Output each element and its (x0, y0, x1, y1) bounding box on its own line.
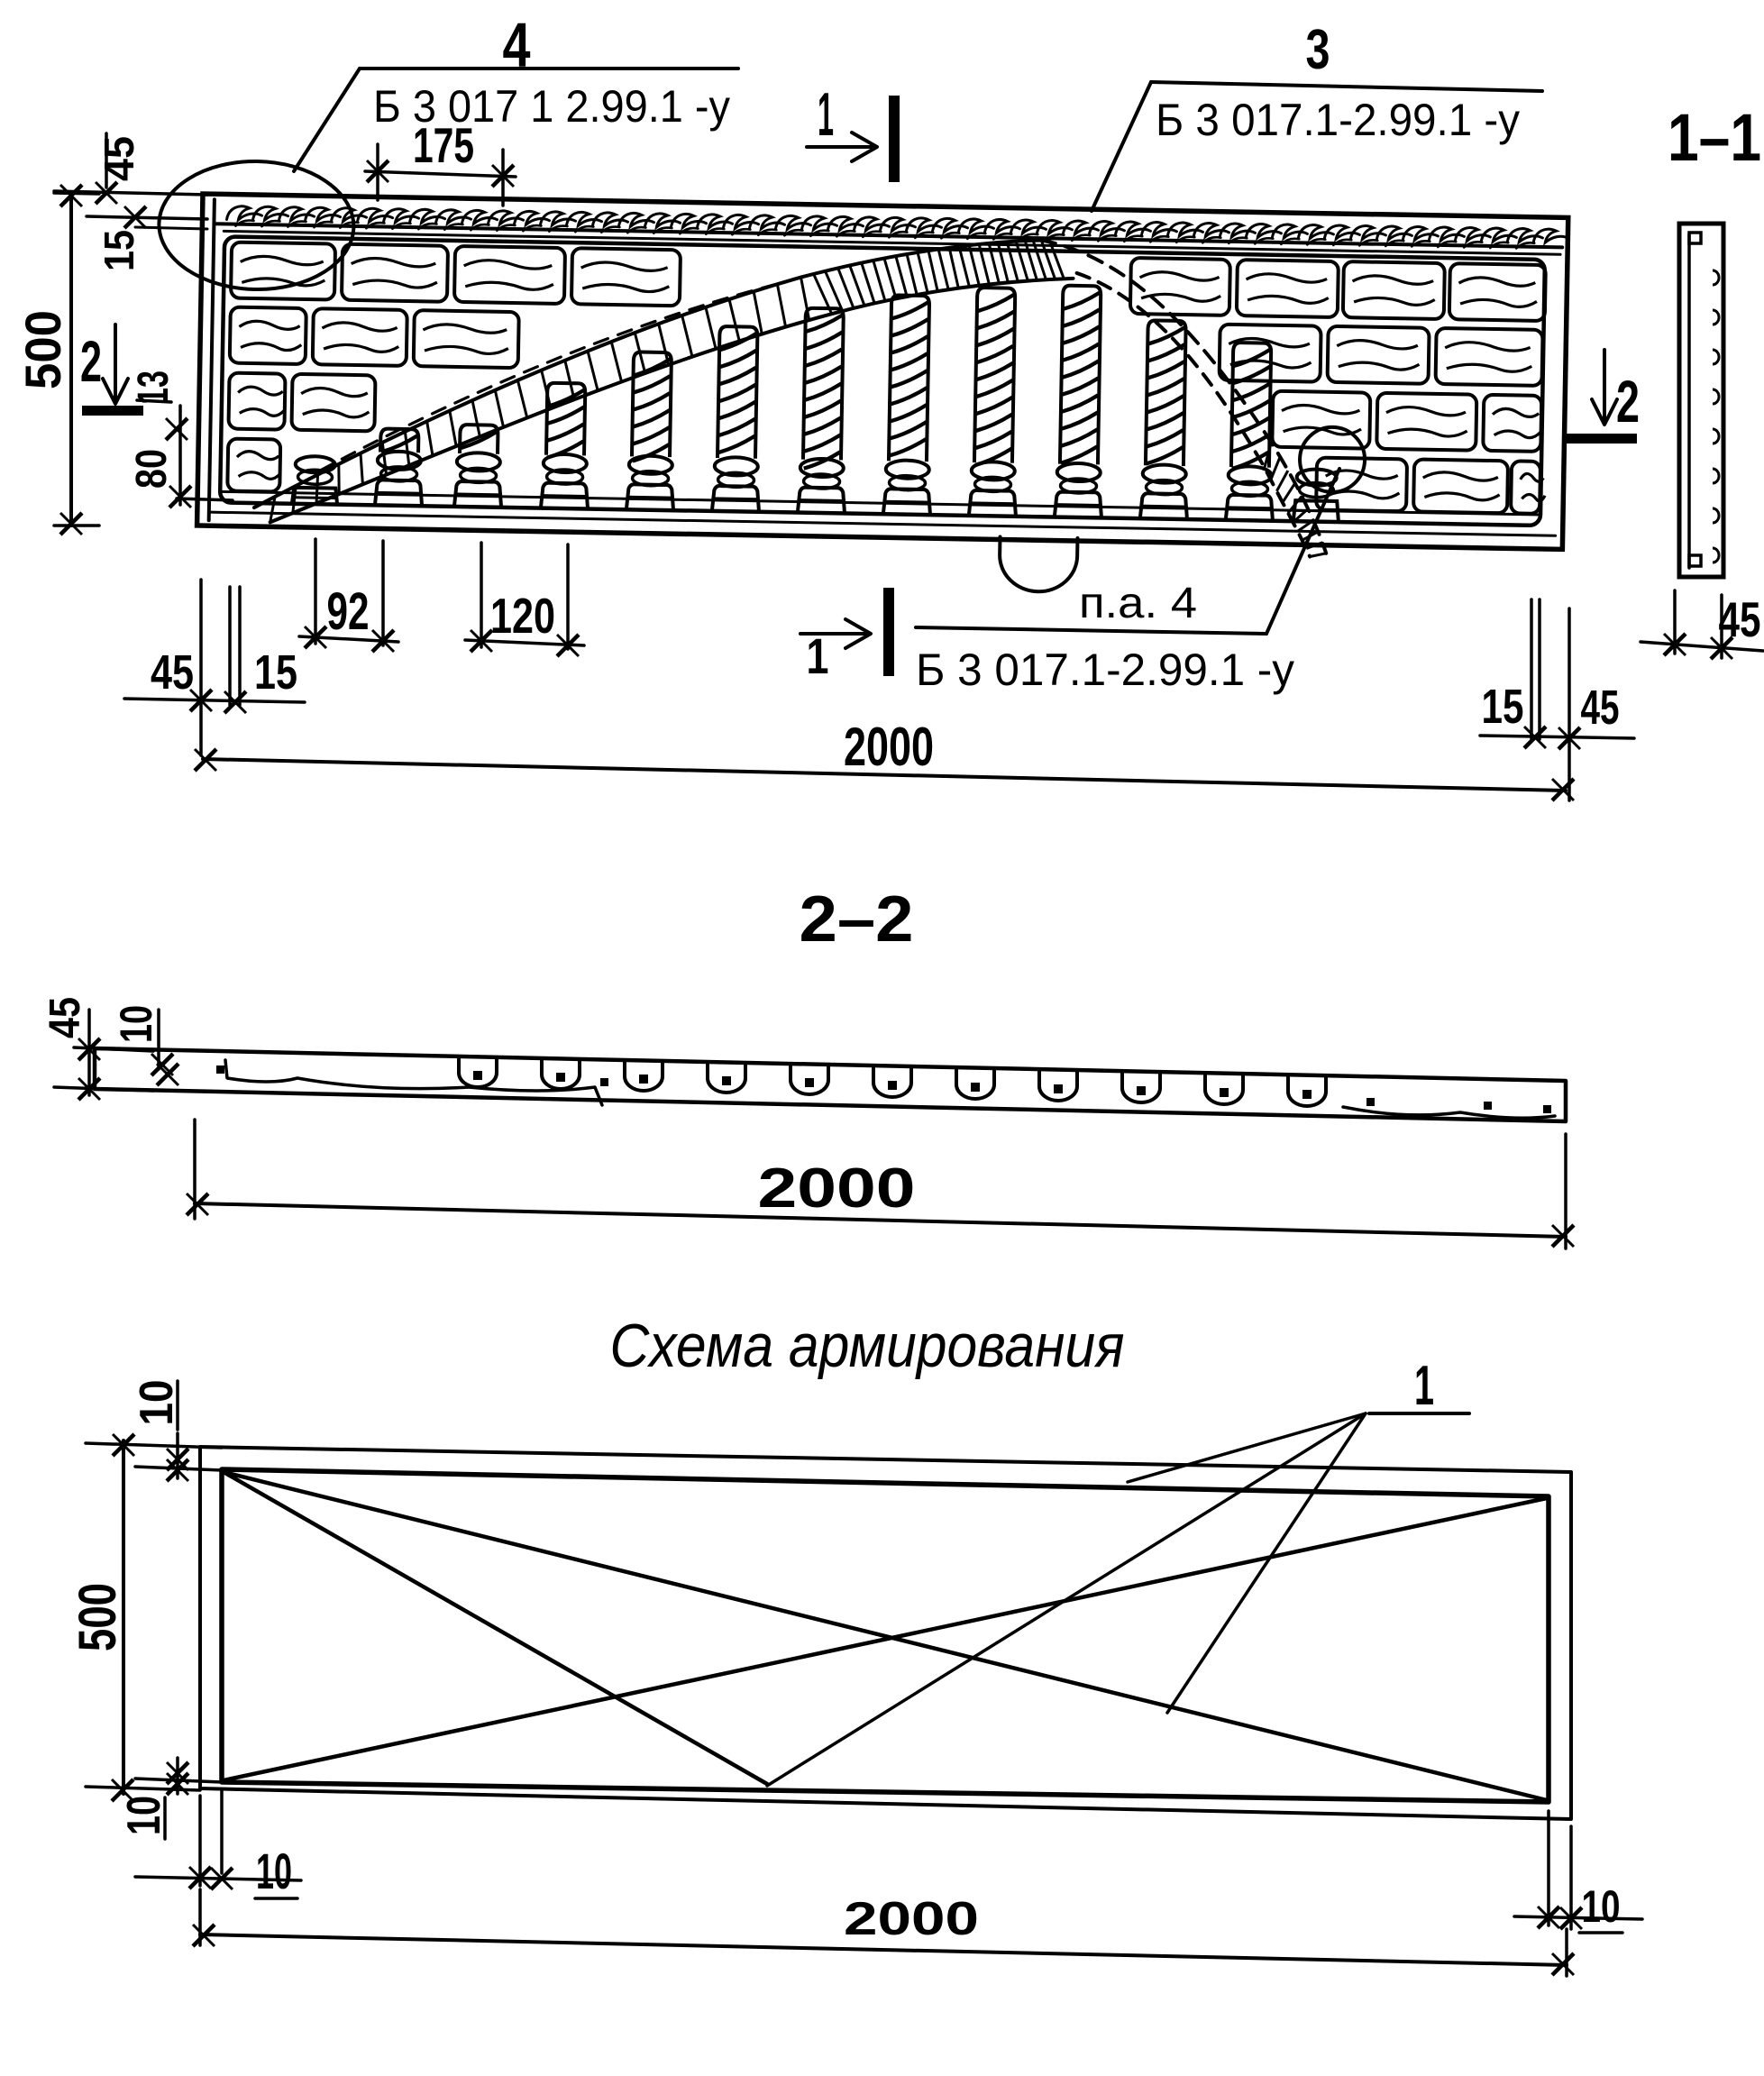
svg-text:45: 45 (96, 136, 142, 181)
svg-text:92: 92 (327, 582, 370, 641)
svg-text:10: 10 (256, 1843, 292, 1899)
svg-text:2: 2 (1616, 368, 1640, 434)
svg-text:2: 2 (80, 329, 102, 394)
svg-text:10: 10 (131, 1380, 183, 1426)
svg-text:500: 500 (69, 1583, 127, 1651)
svg-text:45: 45 (1581, 681, 1620, 735)
svg-text:3: 3 (1306, 19, 1330, 81)
svg-text:Схема армирования: Схема армирования (610, 1312, 1125, 1380)
svg-text:120: 120 (490, 588, 555, 644)
svg-text:2000: 2000 (844, 717, 934, 777)
svg-text:45: 45 (1719, 591, 1761, 647)
svg-text:10: 10 (1582, 1881, 1621, 1932)
svg-text:15: 15 (1482, 680, 1524, 734)
svg-text:500: 500 (14, 310, 71, 389)
svg-text:15: 15 (254, 645, 297, 700)
svg-text:45: 45 (41, 997, 89, 1038)
svg-text:10: 10 (118, 1796, 170, 1835)
svg-text:2–2: 2–2 (800, 883, 914, 956)
svg-text:10: 10 (111, 1005, 161, 1043)
svg-text:1: 1 (807, 627, 829, 684)
svg-text:15: 15 (96, 230, 142, 271)
svg-text:45: 45 (151, 645, 194, 700)
svg-text:80: 80 (128, 449, 176, 489)
svg-text:1: 1 (818, 80, 834, 149)
svg-text:1–1: 1–1 (1668, 100, 1761, 175)
svg-text:1: 1 (1414, 1355, 1434, 1417)
svg-text:Б 3 017.1-2.99.1 -у: Б 3 017.1-2.99.1 -у (916, 645, 1294, 695)
svg-text:2000: 2000 (844, 1893, 979, 1945)
svg-text:п.а. 4: п.а. 4 (1079, 580, 1197, 627)
svg-text:Б 3 017.1-2.99.1 -у: Б 3 017.1-2.99.1 -у (1156, 95, 1520, 145)
svg-text:2000: 2000 (758, 1157, 916, 1220)
svg-text:175: 175 (413, 117, 474, 173)
